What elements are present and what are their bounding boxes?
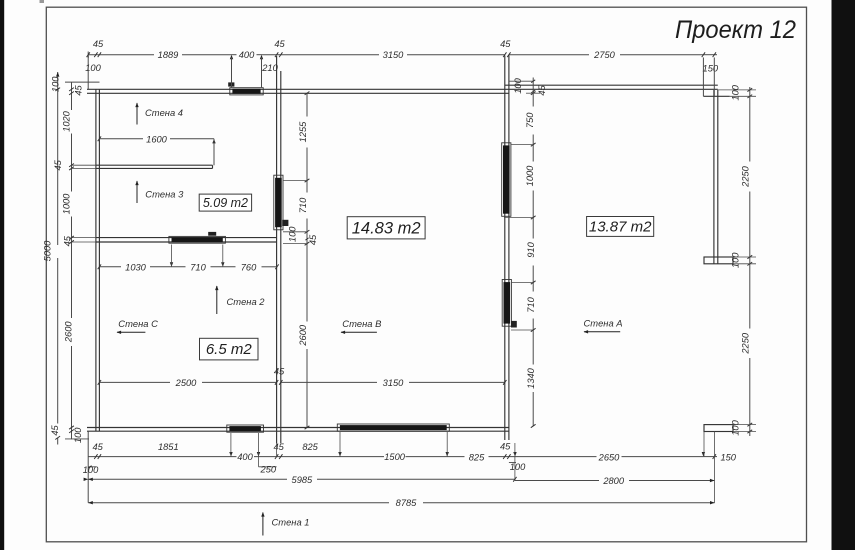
svg-text:710: 710: [190, 262, 206, 272]
svg-text:45: 45: [500, 39, 511, 49]
svg-text:45: 45: [308, 234, 318, 245]
svg-text:1340: 1340: [526, 367, 536, 389]
svg-text:5985: 5985: [292, 475, 314, 485]
svg-text:1851: 1851: [158, 442, 179, 452]
svg-text:Стена 4: Стена 4: [145, 107, 183, 118]
svg-text:910: 910: [526, 241, 536, 257]
svg-text:Стена 3: Стена 3: [145, 189, 184, 200]
svg-text:45: 45: [274, 442, 285, 452]
svg-text:710: 710: [526, 296, 536, 312]
svg-text:14.83 m2: 14.83 m2: [352, 219, 421, 237]
svg-text:2600: 2600: [298, 324, 308, 347]
svg-text:825: 825: [302, 442, 318, 452]
svg-text:8785: 8785: [396, 498, 418, 508]
svg-text:45: 45: [274, 39, 285, 49]
svg-text:1255: 1255: [298, 121, 308, 143]
svg-text:150: 150: [720, 452, 736, 462]
svg-text:400: 400: [237, 452, 253, 462]
svg-text:Стена 2: Стена 2: [227, 296, 266, 307]
svg-text:3150: 3150: [383, 50, 405, 60]
svg-text:5000: 5000: [43, 240, 53, 262]
svg-text:45: 45: [500, 442, 511, 452]
svg-text:710: 710: [298, 197, 308, 213]
svg-text:6.5 m2: 6.5 m2: [206, 341, 253, 358]
svg-text:1000: 1000: [525, 165, 535, 187]
svg-text:100: 100: [731, 84, 741, 100]
svg-text:1030: 1030: [125, 262, 147, 272]
svg-text:100: 100: [51, 76, 61, 92]
svg-text:1000: 1000: [61, 193, 71, 215]
svg-text:Стена 1: Стена 1: [272, 517, 310, 528]
svg-text:1889: 1889: [158, 50, 179, 60]
svg-text:1600: 1600: [146, 134, 168, 144]
svg-text:Проект 12: Проект 12: [675, 16, 796, 44]
svg-text:45: 45: [50, 425, 60, 436]
svg-text:825: 825: [469, 452, 485, 462]
svg-text:45: 45: [63, 235, 73, 246]
svg-text:760: 760: [241, 262, 257, 272]
svg-text:100: 100: [731, 419, 741, 435]
svg-text:1020: 1020: [61, 110, 71, 132]
svg-text:100: 100: [513, 77, 523, 93]
svg-text:45: 45: [537, 85, 547, 96]
svg-text:Стена A: Стена A: [584, 318, 623, 329]
svg-text:100: 100: [510, 462, 526, 472]
svg-text:100: 100: [73, 427, 83, 443]
svg-text:2750: 2750: [593, 50, 616, 60]
svg-text:100: 100: [731, 252, 741, 268]
svg-text:3150: 3150: [383, 378, 405, 388]
svg-text:45: 45: [93, 39, 104, 49]
svg-text:1500: 1500: [384, 452, 406, 462]
svg-text:13.87 m2: 13.87 m2: [589, 219, 652, 236]
svg-text:2800: 2800: [602, 476, 625, 486]
svg-text:100: 100: [83, 465, 99, 475]
svg-text:210: 210: [261, 63, 278, 73]
svg-text:Стена B: Стена B: [342, 318, 381, 329]
svg-text:100: 100: [85, 63, 101, 73]
svg-text:250: 250: [260, 465, 277, 475]
svg-text:100: 100: [288, 226, 298, 242]
svg-text:5.09 m2: 5.09 m2: [203, 196, 248, 210]
svg-text:2500: 2500: [175, 378, 198, 388]
svg-text:45: 45: [274, 367, 285, 377]
svg-text:2600: 2600: [63, 321, 73, 344]
svg-text:400: 400: [239, 50, 255, 60]
svg-text:45: 45: [53, 159, 63, 170]
svg-text:2250: 2250: [740, 165, 750, 188]
svg-text:45: 45: [74, 85, 84, 96]
svg-text:2250: 2250: [740, 332, 750, 355]
svg-text:2650: 2650: [598, 452, 621, 462]
svg-text:45: 45: [93, 442, 104, 452]
svg-text:150: 150: [703, 64, 719, 74]
svg-text:Стена C: Стена C: [118, 318, 158, 329]
svg-text:750: 750: [525, 112, 535, 128]
